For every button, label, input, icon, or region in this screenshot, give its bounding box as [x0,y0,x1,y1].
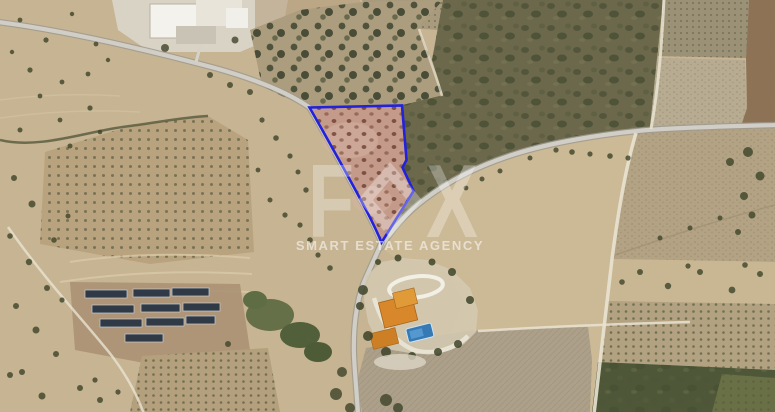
listing-aerial-photo: F X SMART ESTATE AGENCY [0,0,775,412]
satellite-scene [0,0,775,412]
field-right-center [612,127,775,262]
orchard-bottom-left [130,348,280,412]
field-top-right [650,0,775,128]
